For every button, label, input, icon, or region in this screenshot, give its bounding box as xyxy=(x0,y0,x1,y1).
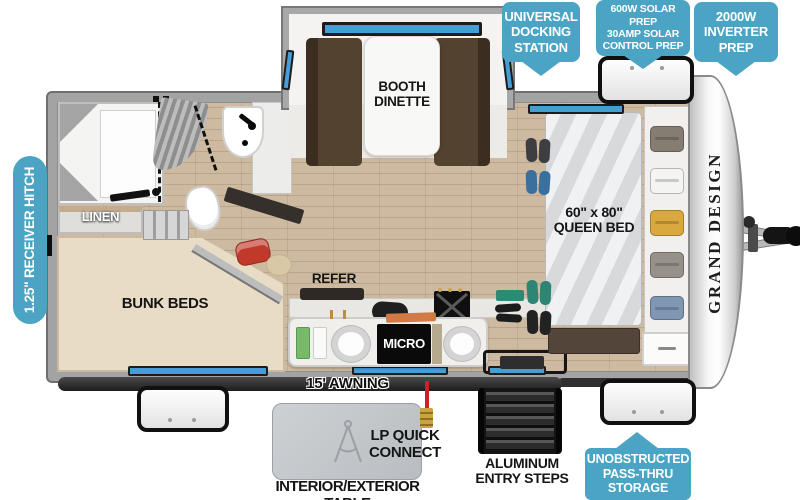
refrigerator xyxy=(300,288,364,300)
shoe xyxy=(526,170,538,194)
awning-label: 15' AWNING xyxy=(300,376,395,393)
dinette-bench-left xyxy=(306,38,362,166)
shoe xyxy=(539,311,551,336)
shoe xyxy=(526,280,539,305)
callout-inverter: 2000W INVERTER PREP xyxy=(694,2,778,62)
pouf-cushion xyxy=(266,254,292,276)
clothes-stack-white xyxy=(650,168,684,194)
entry-steps xyxy=(478,388,562,454)
stove-knob xyxy=(448,288,452,292)
shoe xyxy=(538,139,550,164)
cutting-board xyxy=(386,312,436,323)
shower-fixture-knob xyxy=(152,188,160,196)
sandal xyxy=(496,313,522,322)
clothes-stack-taupe xyxy=(650,252,684,278)
callout-solar: 600W SOLAR PREP 30AMP SOLAR CONTROL PREP xyxy=(596,0,690,56)
towel-green xyxy=(296,327,310,359)
lp-label: LP QUICK CONNECT xyxy=(357,428,453,461)
towel-white xyxy=(313,327,327,359)
hitch-coupler-ball xyxy=(786,226,800,246)
refer-label: REFER xyxy=(302,272,366,287)
kitchen-faucet xyxy=(330,310,333,319)
kitchen-sink-right xyxy=(444,327,480,361)
entry-mat xyxy=(500,356,544,369)
bed-head-window xyxy=(528,104,624,114)
stove-knob xyxy=(458,288,462,292)
dinette-window xyxy=(322,22,482,36)
callout-passthru: UNOBSTRUCTED PASS-THRU STORAGE xyxy=(585,448,691,500)
tongue-jack xyxy=(748,224,758,252)
brand-logo: GRAND DESIGN xyxy=(705,83,727,383)
floorplan-scene: BOOTH DINETTE LINEN BUNK BEDS REFER xyxy=(0,0,800,500)
nightstand-handle xyxy=(658,347,676,350)
kitchen-sink-left xyxy=(332,326,370,362)
shoe xyxy=(527,310,539,334)
floor-towel xyxy=(496,290,524,301)
linen-label: LINEN xyxy=(58,210,143,224)
callout-hitch: 1.25" RECEIVER HITCH xyxy=(13,156,47,324)
callout-docking: UNIVERSAL DOCKING STATION xyxy=(502,2,580,62)
door-screw xyxy=(192,418,196,422)
sink-drain xyxy=(242,140,248,146)
door-screw xyxy=(168,418,172,422)
bunk-beds-label: BUNK BEDS xyxy=(90,296,240,313)
kitchen-faucet xyxy=(343,310,346,319)
table-label: INTERIOR/EXTERIOR TABLE xyxy=(260,479,435,500)
storage-door-rear xyxy=(137,386,229,432)
clothes-stack-gray xyxy=(650,126,684,152)
shoe xyxy=(538,171,551,196)
passthru-door xyxy=(600,379,696,425)
shoe xyxy=(540,281,552,305)
bunk-stairs xyxy=(143,210,189,240)
door-screw xyxy=(632,410,636,414)
kitchen-window xyxy=(352,366,448,375)
lp-connector xyxy=(420,408,433,428)
door-screw xyxy=(660,410,664,414)
sink-faucet-icon xyxy=(248,122,256,130)
shoe xyxy=(525,138,537,163)
micro-label: MICRO xyxy=(377,337,431,351)
step-treads xyxy=(486,392,554,450)
entry-steps-label: ALUMINUM ENTRY STEPS xyxy=(470,456,574,487)
folded-blanket-blue xyxy=(650,296,684,320)
callout-solar-pointer xyxy=(623,55,663,69)
booth-dinette-label: BOOTH DINETTE xyxy=(360,80,444,110)
lp-hose xyxy=(425,381,429,410)
callout-docking-pointer xyxy=(521,61,561,76)
callout-passthru-pointer xyxy=(615,432,659,449)
foot-bench xyxy=(548,328,640,354)
jack-handle xyxy=(743,216,755,228)
clothes-stack-yellow xyxy=(650,210,684,236)
shower-door xyxy=(100,110,156,198)
queen-bed-label: 60" x 80" QUEEN BED xyxy=(540,205,648,236)
bunk-window xyxy=(128,366,268,376)
callout-inverter-pointer xyxy=(716,61,756,76)
stove-knob xyxy=(438,288,442,292)
counter-trim xyxy=(432,324,442,364)
